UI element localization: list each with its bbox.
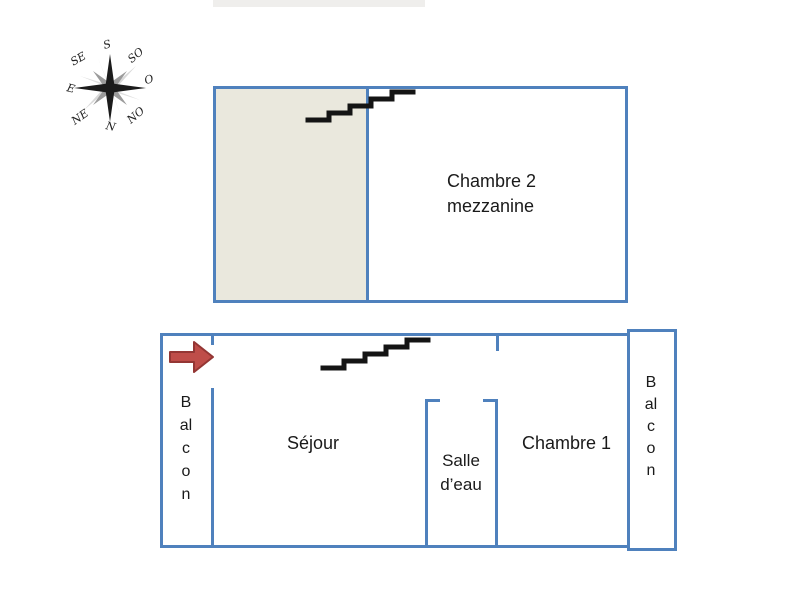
compass-label-n: N [104,119,117,134]
room-label-sejour: Séjour [287,433,339,454]
compass-label-so: SO [125,45,146,66]
balcony-left-inner-wall [211,388,214,545]
room-label-salle-deau-line1: Salle [424,449,498,473]
compass-label-se: SE [68,49,88,68]
compass-rose-icon: S SO O NO N NE E SE [48,26,172,142]
compass-label-no: NO [124,104,147,127]
compass-label-ne: NE [68,107,91,128]
cropped-title-band [213,0,425,7]
room-label-chambre2-line1: Chambre 2 [447,169,536,194]
compass-label-e: E [64,81,76,96]
bedroom-partition-jamb [496,336,499,351]
room-label-salle-deau: Salle d’eau [424,449,498,497]
bathroom-left-door-jamb [425,399,440,402]
compass-label-o: O [143,72,156,87]
floor-plan-page: S SO O NO N NE E SE Chambre 2 mezzanine … [0,0,800,600]
stairs-icon [315,330,435,378]
stairs-icon [300,82,420,130]
room-label-balcony-left: Balcon [178,391,194,506]
room-label-chambre2: Chambre 2 mezzanine [447,169,536,219]
bathroom-right-door-jamb [483,399,498,402]
room-label-salle-deau-line2: d’eau [424,473,498,497]
entrance-arrow-icon [167,338,217,376]
room-label-chambre2-line2: mezzanine [447,194,536,219]
room-label-chambre1: Chambre 1 [522,433,611,454]
compass-label-s: S [102,37,113,52]
room-label-balcony-right: Balcon [643,372,659,482]
